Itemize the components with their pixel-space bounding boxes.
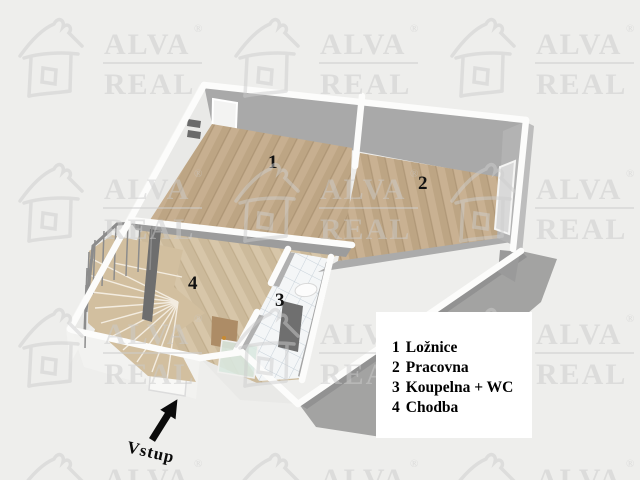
legend-item-4: 4Chodba xyxy=(392,398,532,418)
legend-item-3: 3Koupelna + WC xyxy=(392,378,532,398)
legend-room-4-number: 4 xyxy=(392,399,400,416)
legend-room-4-name: Chodba xyxy=(406,399,459,416)
legend-room-3-name: Koupelna + WC xyxy=(406,379,514,396)
legend-item-2: 2Pracovna xyxy=(392,358,532,378)
room-3-number: 3 xyxy=(275,290,285,311)
legend-box: 1Ložnice 2Pracovna 3Koupelna + WC 4Chodb… xyxy=(376,312,532,438)
legend-item-1: 1Ložnice xyxy=(392,338,532,358)
faucet-dot xyxy=(222,336,226,340)
legend-room-1-number: 1 xyxy=(392,339,400,356)
room-2-number: 2 xyxy=(418,173,428,194)
legend-room-3-number: 3 xyxy=(392,379,400,396)
legend-room-2-number: 2 xyxy=(392,359,400,376)
room-4-number: 4 xyxy=(188,273,198,294)
legend-room-1-name: Ložnice xyxy=(406,339,458,356)
legend-room-2-name: Pracovna xyxy=(406,359,469,376)
floorplan-render: ALVA ® REAL xyxy=(0,0,640,480)
